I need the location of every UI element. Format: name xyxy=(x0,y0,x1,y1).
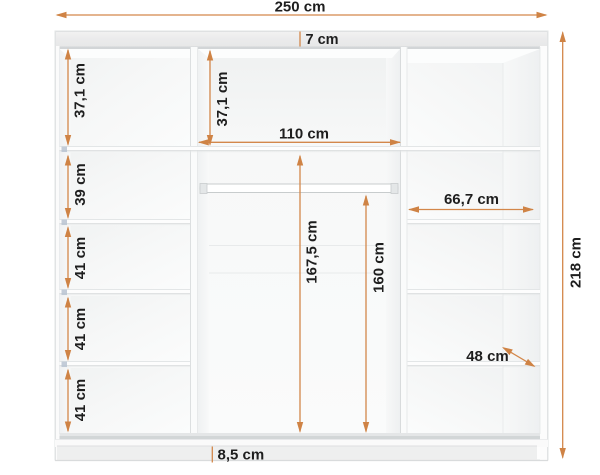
svg-text:41 cm: 41 cm xyxy=(72,308,89,351)
svg-text:8,5 cm: 8,5 cm xyxy=(218,447,265,464)
svg-text:39 cm: 39 cm xyxy=(72,163,89,206)
svg-text:48 cm: 48 cm xyxy=(466,348,509,365)
svg-text:66,7 cm: 66,7 cm xyxy=(444,191,499,208)
svg-text:218 cm: 218 cm xyxy=(567,237,584,288)
svg-text:41 cm: 41 cm xyxy=(72,379,89,422)
svg-text:250 cm: 250 cm xyxy=(275,0,326,16)
svg-text:110 cm: 110 cm xyxy=(279,126,329,143)
svg-text:7 cm: 7 cm xyxy=(306,32,339,48)
svg-text:41 cm: 41 cm xyxy=(72,237,89,280)
svg-text:167,5 cm: 167,5 cm xyxy=(303,220,320,283)
svg-text:37,1 cm: 37,1 cm xyxy=(214,71,231,126)
svg-text:37,1 cm: 37,1 cm xyxy=(71,63,88,118)
svg-text:160 cm: 160 cm xyxy=(370,242,387,293)
